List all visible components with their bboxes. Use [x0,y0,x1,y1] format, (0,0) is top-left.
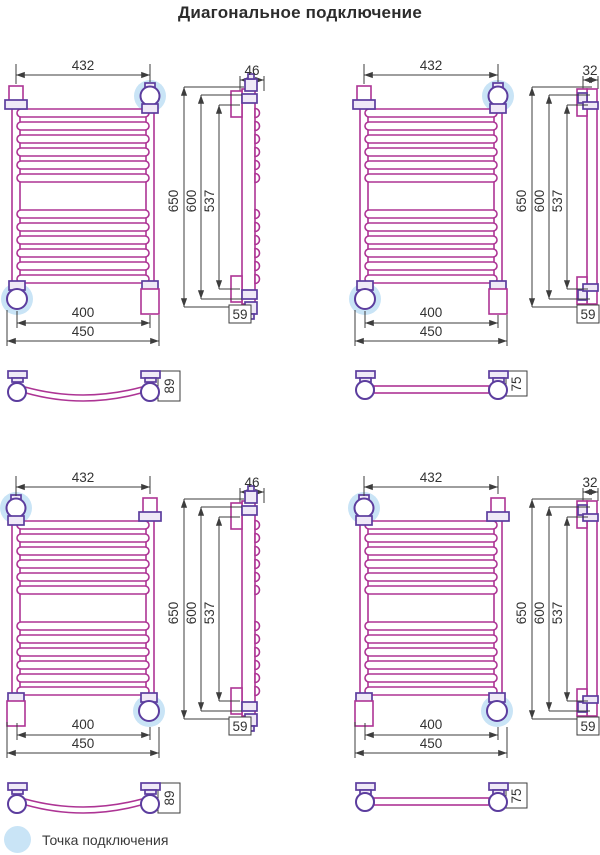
quadrant-bottom-left: 432 400 450 650 600 537 46 59 89 [0,470,264,813]
dim-inner-height: 537 [550,190,565,213]
dim-top-depth: 32 [582,475,597,490]
technical-drawing-page: Диагональное подключение [0,0,600,855]
dim-inner-width: 400 [420,305,443,320]
dim-bottom-view-depth: 89 [162,790,177,805]
dim-mount-height: 600 [532,190,547,213]
dim-top-width: 432 [72,58,95,73]
dim-inner-height: 537 [202,190,217,213]
dim-bottom-depth: 59 [580,719,595,734]
dim-outer-width: 450 [72,736,95,751]
dim-bottom-depth: 59 [580,307,595,322]
bottom-view [356,371,527,399]
bottom-view [356,783,527,811]
front-view-mirrored [348,492,513,727]
dim-top-depth: 46 [244,475,259,490]
bottom-view [8,783,180,813]
front-view [1,80,166,315]
front-view-mirrored [0,492,165,727]
legend-label: Точка подключения [42,832,168,848]
dim-top-width: 432 [72,470,95,485]
dim-overall-height: 650 [166,602,181,625]
side-view [231,486,264,731]
dim-mount-height: 600 [184,190,199,213]
dim-bottom-depth: 59 [232,719,247,734]
dim-bottom-view-depth: 75 [509,376,524,391]
quadrant-top-left: 432 400 450 650 600 537 46 59 89 [1,58,264,401]
dim-top-width: 432 [420,470,443,485]
dim-overall-height: 650 [514,602,529,625]
dim-mount-height: 600 [184,602,199,625]
dim-top-depth: 46 [244,63,259,78]
dim-inner-width: 400 [420,717,443,732]
dim-mount-height: 600 [532,602,547,625]
dim-top-width: 432 [420,58,443,73]
dim-outer-width: 450 [420,324,443,339]
dim-overall-height: 650 [166,190,181,213]
side-view [577,488,598,716]
drawing-canvas: 432 400 450 650 600 537 46 59 89 432 400… [0,0,600,855]
dim-bottom-view-depth: 89 [162,378,177,393]
dim-bottom-depth: 59 [232,307,247,322]
dim-inner-width: 400 [72,305,95,320]
dim-outer-width: 450 [420,736,443,751]
quadrant-top-right: 432 400 450 650 600 537 32 59 75 [349,58,599,399]
dim-inner-height: 537 [550,602,565,625]
connection-point-swatch [4,826,31,853]
dim-inner-width: 400 [72,717,95,732]
dim-bottom-view-depth: 75 [509,788,524,803]
front-view [349,80,514,315]
side-view [577,76,598,304]
dim-top-depth: 32 [582,63,597,78]
dim-overall-height: 650 [514,190,529,213]
bottom-view [8,371,180,401]
quadrant-bottom-right: 432 400 450 650 600 537 32 59 75 [348,470,599,811]
legend: Точка подключения [4,826,168,853]
dim-outer-width: 450 [72,324,95,339]
dim-inner-height: 537 [202,602,217,625]
side-view [231,74,264,319]
